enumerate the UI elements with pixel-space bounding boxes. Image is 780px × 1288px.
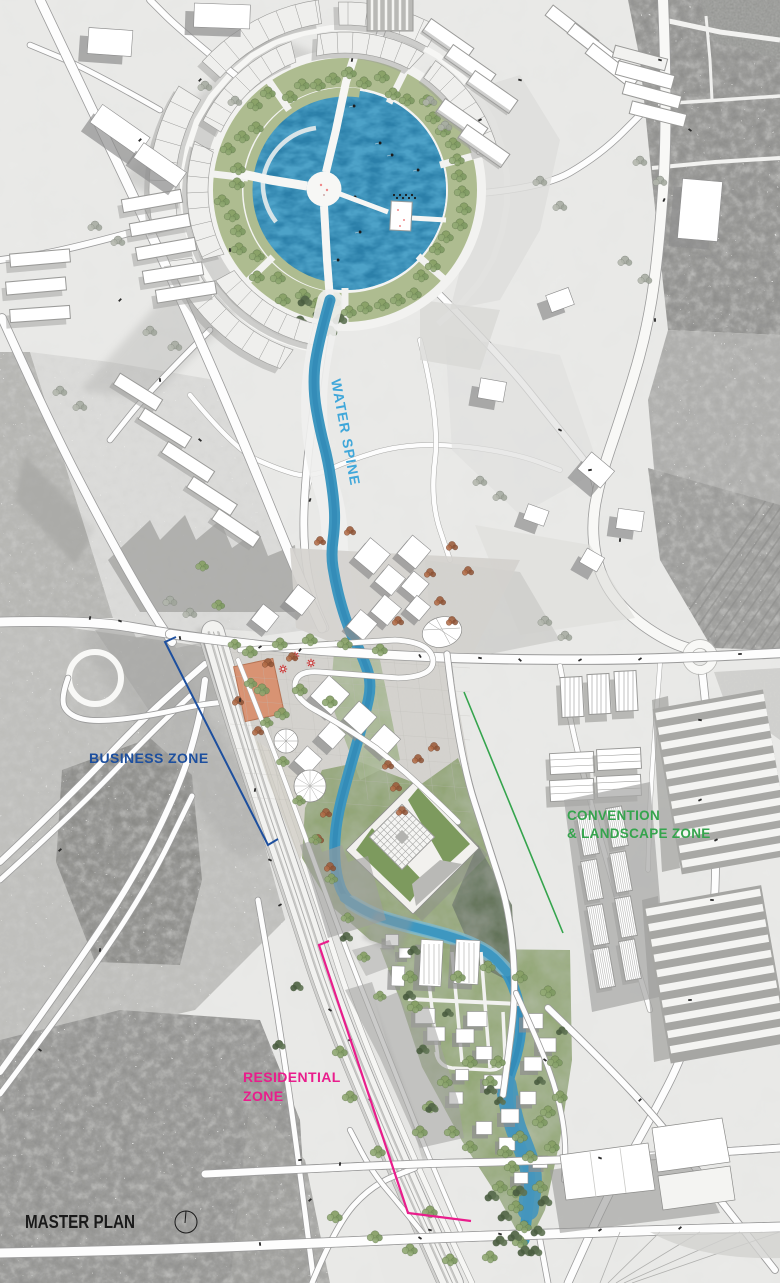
svg-text:MASTER PLAN: MASTER PLAN	[25, 1212, 135, 1232]
svg-text:& LANDSCAPE ZONE: & LANDSCAPE ZONE	[567, 826, 711, 841]
svg-text:BUSINESS ZONE: BUSINESS ZONE	[89, 750, 209, 766]
svg-text:ZONE: ZONE	[243, 1088, 284, 1104]
svg-text:RESIDENTIAL: RESIDENTIAL	[243, 1069, 341, 1085]
svg-text:CONVENTION: CONVENTION	[567, 808, 660, 823]
